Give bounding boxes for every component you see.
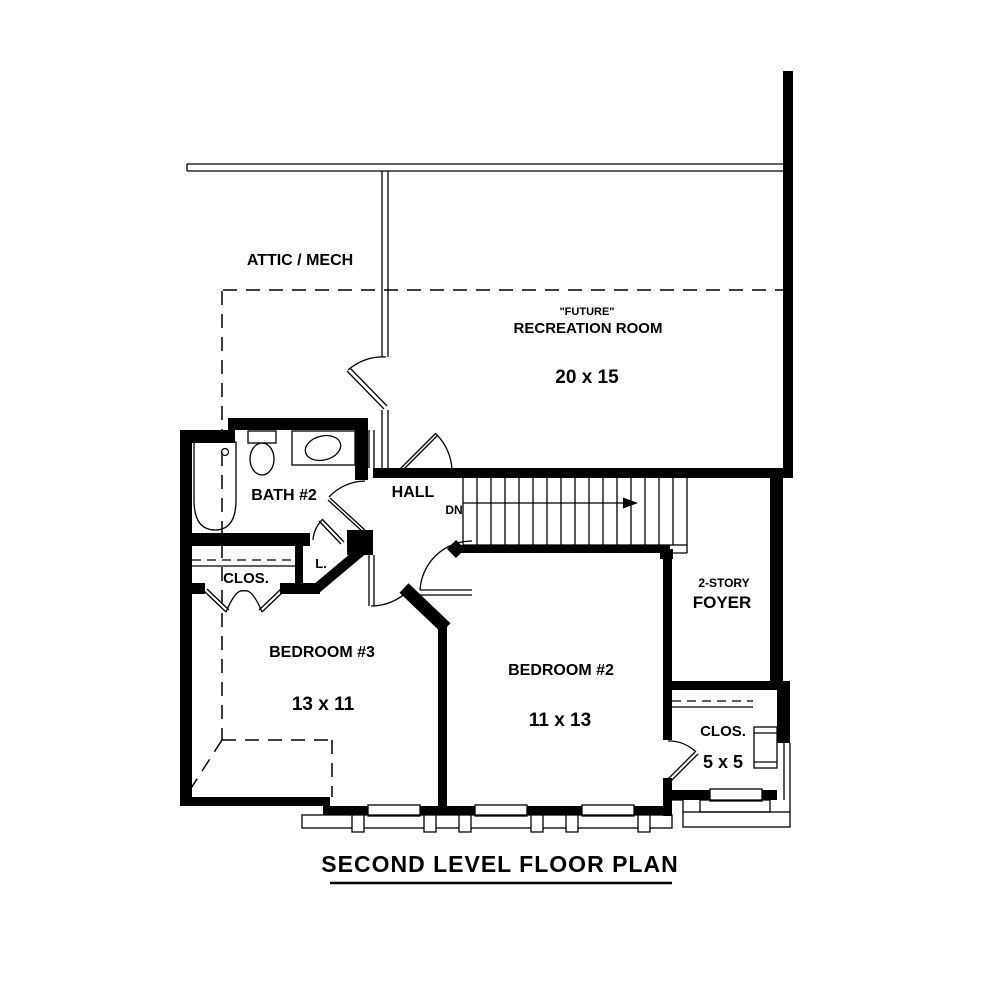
wall-stair-end-block [660,549,673,559]
window-closet2 [710,789,762,801]
plan-background [0,0,1000,1000]
floor-plan-drawing: ATTIC / MECH "FUTURE" RECREATION ROOM 20… [0,0,1000,1000]
room-dim-bedroom2: 11 x 13 [529,710,591,731]
room-dim-recreation: 20 x 15 [555,367,619,388]
room-label-hall: HALL [392,484,435,501]
room-label-recreation: RECREATION ROOM [514,320,663,337]
wall-outer-right [783,71,793,473]
wall-bath-top [228,418,368,430]
room-dim-bedroom3: 13 x 11 [292,694,355,715]
wall-bedroom2-left [438,624,447,806]
window-bedroom2-left [475,805,527,816]
room-label-foyer: FOYER [693,593,752,612]
room-dim-closet2: 5 x 5 [703,752,743,772]
room-label-bedroom3: BEDROOM #3 [269,644,375,661]
wall-foyer-right [770,472,783,686]
wall-bath-bottom [183,533,310,546]
wall-bedroom3-bottom [180,797,330,806]
room-label-closet2: CLOS. [700,723,746,740]
floor-plan-page: ATTIC / MECH "FUTURE" RECREATION ROOM 20… [0,0,1000,1000]
room-label-foyer-prefix: 2-STORY [698,576,749,590]
wall-closet2-top [663,681,783,690]
window-bedroom3 [368,805,420,816]
room-label-future: "FUTURE" [559,306,614,318]
room-label-closet3: CLOS. [223,570,269,587]
wall-outer-left [180,430,192,806]
room-label-linen: L. [315,556,327,571]
room-label-bedroom2: BEDROOM #2 [508,662,614,679]
plan-title: SECOND LEVEL FLOOR PLAN [321,851,678,877]
wall-hall-top [373,468,793,478]
room-label-attic: ATTIC / MECH [247,252,353,269]
wall-stairs-bottom [455,545,670,553]
stairs-dn-label: DN [445,503,462,517]
wall-closet3-bottom-left [187,583,205,594]
wall-bath-right [355,418,368,480]
window-bedroom2-right [582,805,634,816]
wall-closet2-right [777,681,790,743]
room-label-bath2: BATH #2 [251,487,317,504]
wall-bedroom2-right-upper [663,553,672,740]
